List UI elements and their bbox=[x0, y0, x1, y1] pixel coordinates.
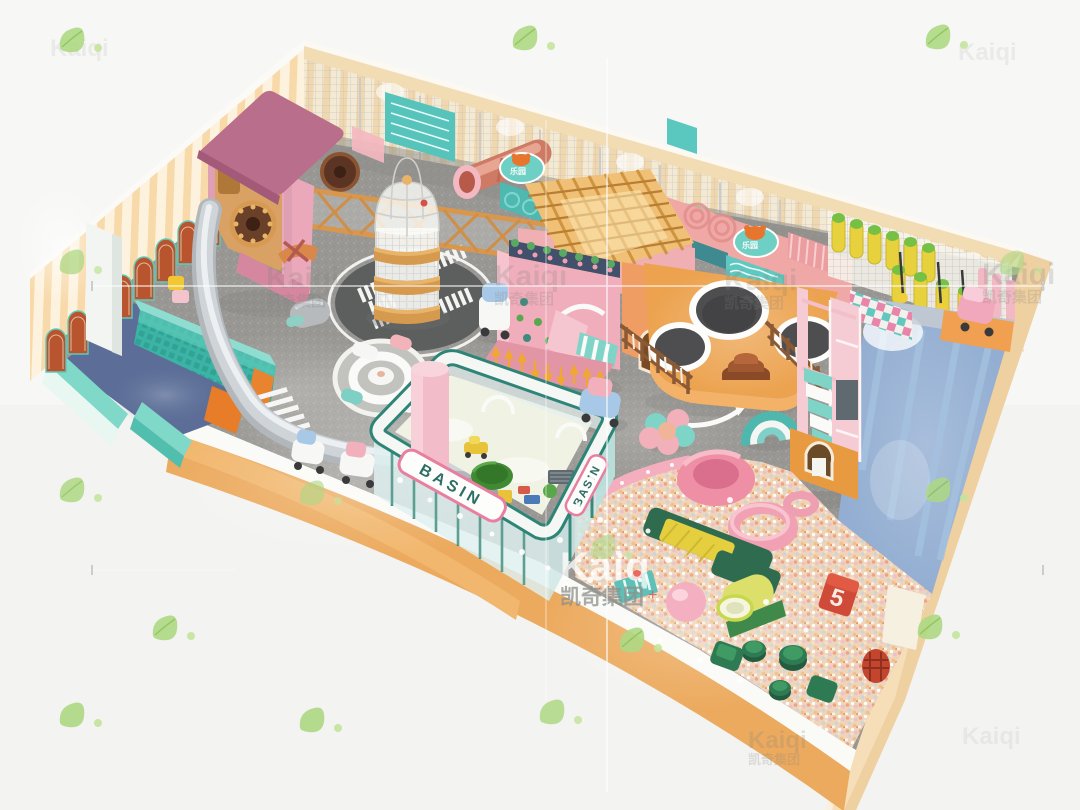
svg-text:乐园: 乐园 bbox=[742, 240, 758, 250]
svg-text:Kaiqi: Kaiqi bbox=[748, 727, 807, 754]
svg-text:凯奇集团: 凯奇集团 bbox=[982, 288, 1042, 306]
svg-text:Kaiqi: Kaiqi bbox=[266, 262, 339, 295]
svg-text:凯奇集团: 凯奇集团 bbox=[266, 292, 326, 310]
svg-text:凯奇集团: 凯奇集团 bbox=[724, 294, 784, 312]
svg-text:Kaiqi: Kaiqi bbox=[494, 260, 567, 293]
svg-text:凯奇集团: 凯奇集团 bbox=[748, 752, 800, 767]
svg-text:Kaiqi: Kaiqi bbox=[724, 264, 797, 297]
svg-text:凯奇集团: 凯奇集团 bbox=[494, 290, 554, 308]
svg-text:Kaiqi: Kaiqi bbox=[962, 723, 1021, 750]
svg-text:乐园: 乐园 bbox=[510, 166, 526, 176]
svg-text:+: + bbox=[648, 587, 657, 604]
svg-text:凯奇集团: 凯奇集团 bbox=[560, 585, 644, 609]
